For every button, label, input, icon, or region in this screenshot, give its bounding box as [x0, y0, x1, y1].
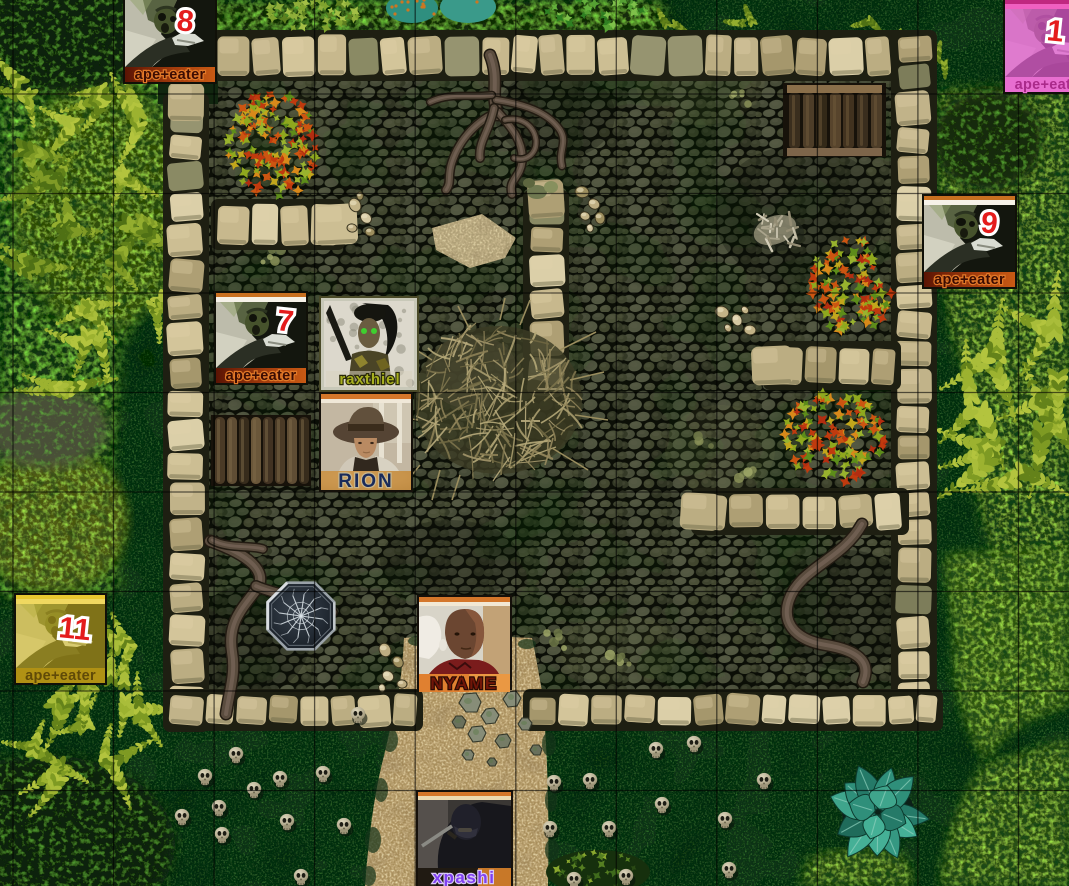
- svg-text:7: 7: [275, 304, 295, 339]
- svg-text:ape+eater: ape+eater: [135, 67, 206, 83]
- svg-text:RION: RION: [338, 471, 394, 492]
- svg-text:8: 8: [175, 4, 195, 39]
- svg-text:ape+eater: ape+eater: [1015, 77, 1069, 93]
- svg-text:ape+eater: ape+eater: [226, 368, 297, 384]
- svg-text:xpashi: xpashi: [433, 868, 496, 886]
- svg-text:1: 1: [1045, 14, 1065, 49]
- svg-text:9: 9: [979, 206, 999, 241]
- svg-text:NYAME: NYAME: [430, 674, 497, 693]
- svg-text:ape+eater: ape+eater: [25, 668, 96, 684]
- svg-text:raxthiel: raxthiel: [339, 371, 400, 388]
- svg-text:ape+eater: ape+eater: [934, 272, 1005, 288]
- svg-text:11: 11: [57, 611, 92, 647]
